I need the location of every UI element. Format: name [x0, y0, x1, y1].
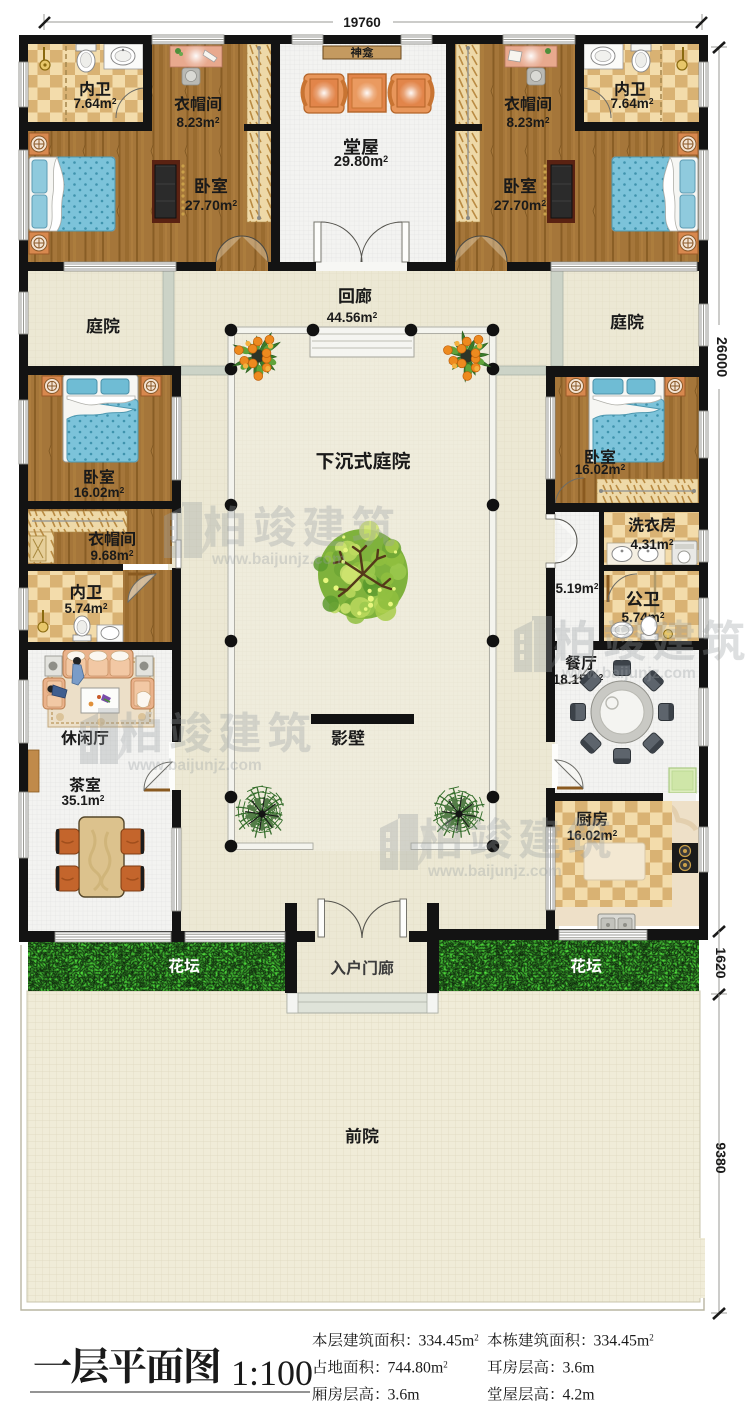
svg-text:www.baijunjz.com: www.baijunjz.com [561, 665, 696, 682]
svg-text:5.74m2: 5.74m2 [65, 601, 108, 616]
svg-text:www.baijunjz.com: www.baijunjz.com [427, 863, 562, 880]
svg-text:334.45m2: 334.45m2 [419, 1333, 479, 1350]
svg-text:16.02m2: 16.02m2 [575, 462, 626, 477]
svg-text:29.80m2: 29.80m2 [334, 154, 388, 170]
svg-text:26000: 26000 [713, 337, 729, 377]
svg-text:8.23m2: 8.23m2 [177, 115, 220, 130]
svg-text:www.baijunjz.com: www.baijunjz.com [127, 757, 262, 774]
svg-text:44.56m2: 44.56m2 [327, 310, 378, 325]
svg-text:35.1m2: 35.1m2 [62, 793, 105, 808]
svg-text:8.23m2: 8.23m2 [507, 115, 550, 130]
svg-text:3.6m: 3.6m [388, 1387, 421, 1404]
svg-text:1620: 1620 [713, 947, 729, 978]
svg-text:3.6m: 3.6m [563, 1360, 596, 1377]
svg-text:7.64m2: 7.64m2 [611, 96, 654, 111]
svg-text:www.baijunjz.com: www.baijunjz.com [211, 551, 346, 568]
svg-text:4.2m: 4.2m [563, 1387, 596, 1404]
svg-text:27.70m2: 27.70m2 [185, 197, 237, 213]
svg-text:16.02m2: 16.02m2 [74, 485, 125, 500]
svg-text:5.19m2: 5.19m2 [556, 581, 599, 596]
svg-text:9.68m2: 9.68m2 [91, 548, 134, 563]
svg-text:27.70m2: 27.70m2 [494, 197, 546, 213]
svg-text:19760: 19760 [343, 15, 381, 30]
svg-text:7.64m2: 7.64m2 [74, 96, 117, 111]
svg-text:4.31m2: 4.31m2 [631, 537, 674, 552]
svg-text:9380: 9380 [713, 1142, 729, 1173]
svg-text:334.45m2: 334.45m2 [594, 1333, 654, 1350]
svg-text:1:100: 1:100 [231, 1353, 313, 1393]
svg-text:744.80m2: 744.80m2 [388, 1360, 448, 1377]
